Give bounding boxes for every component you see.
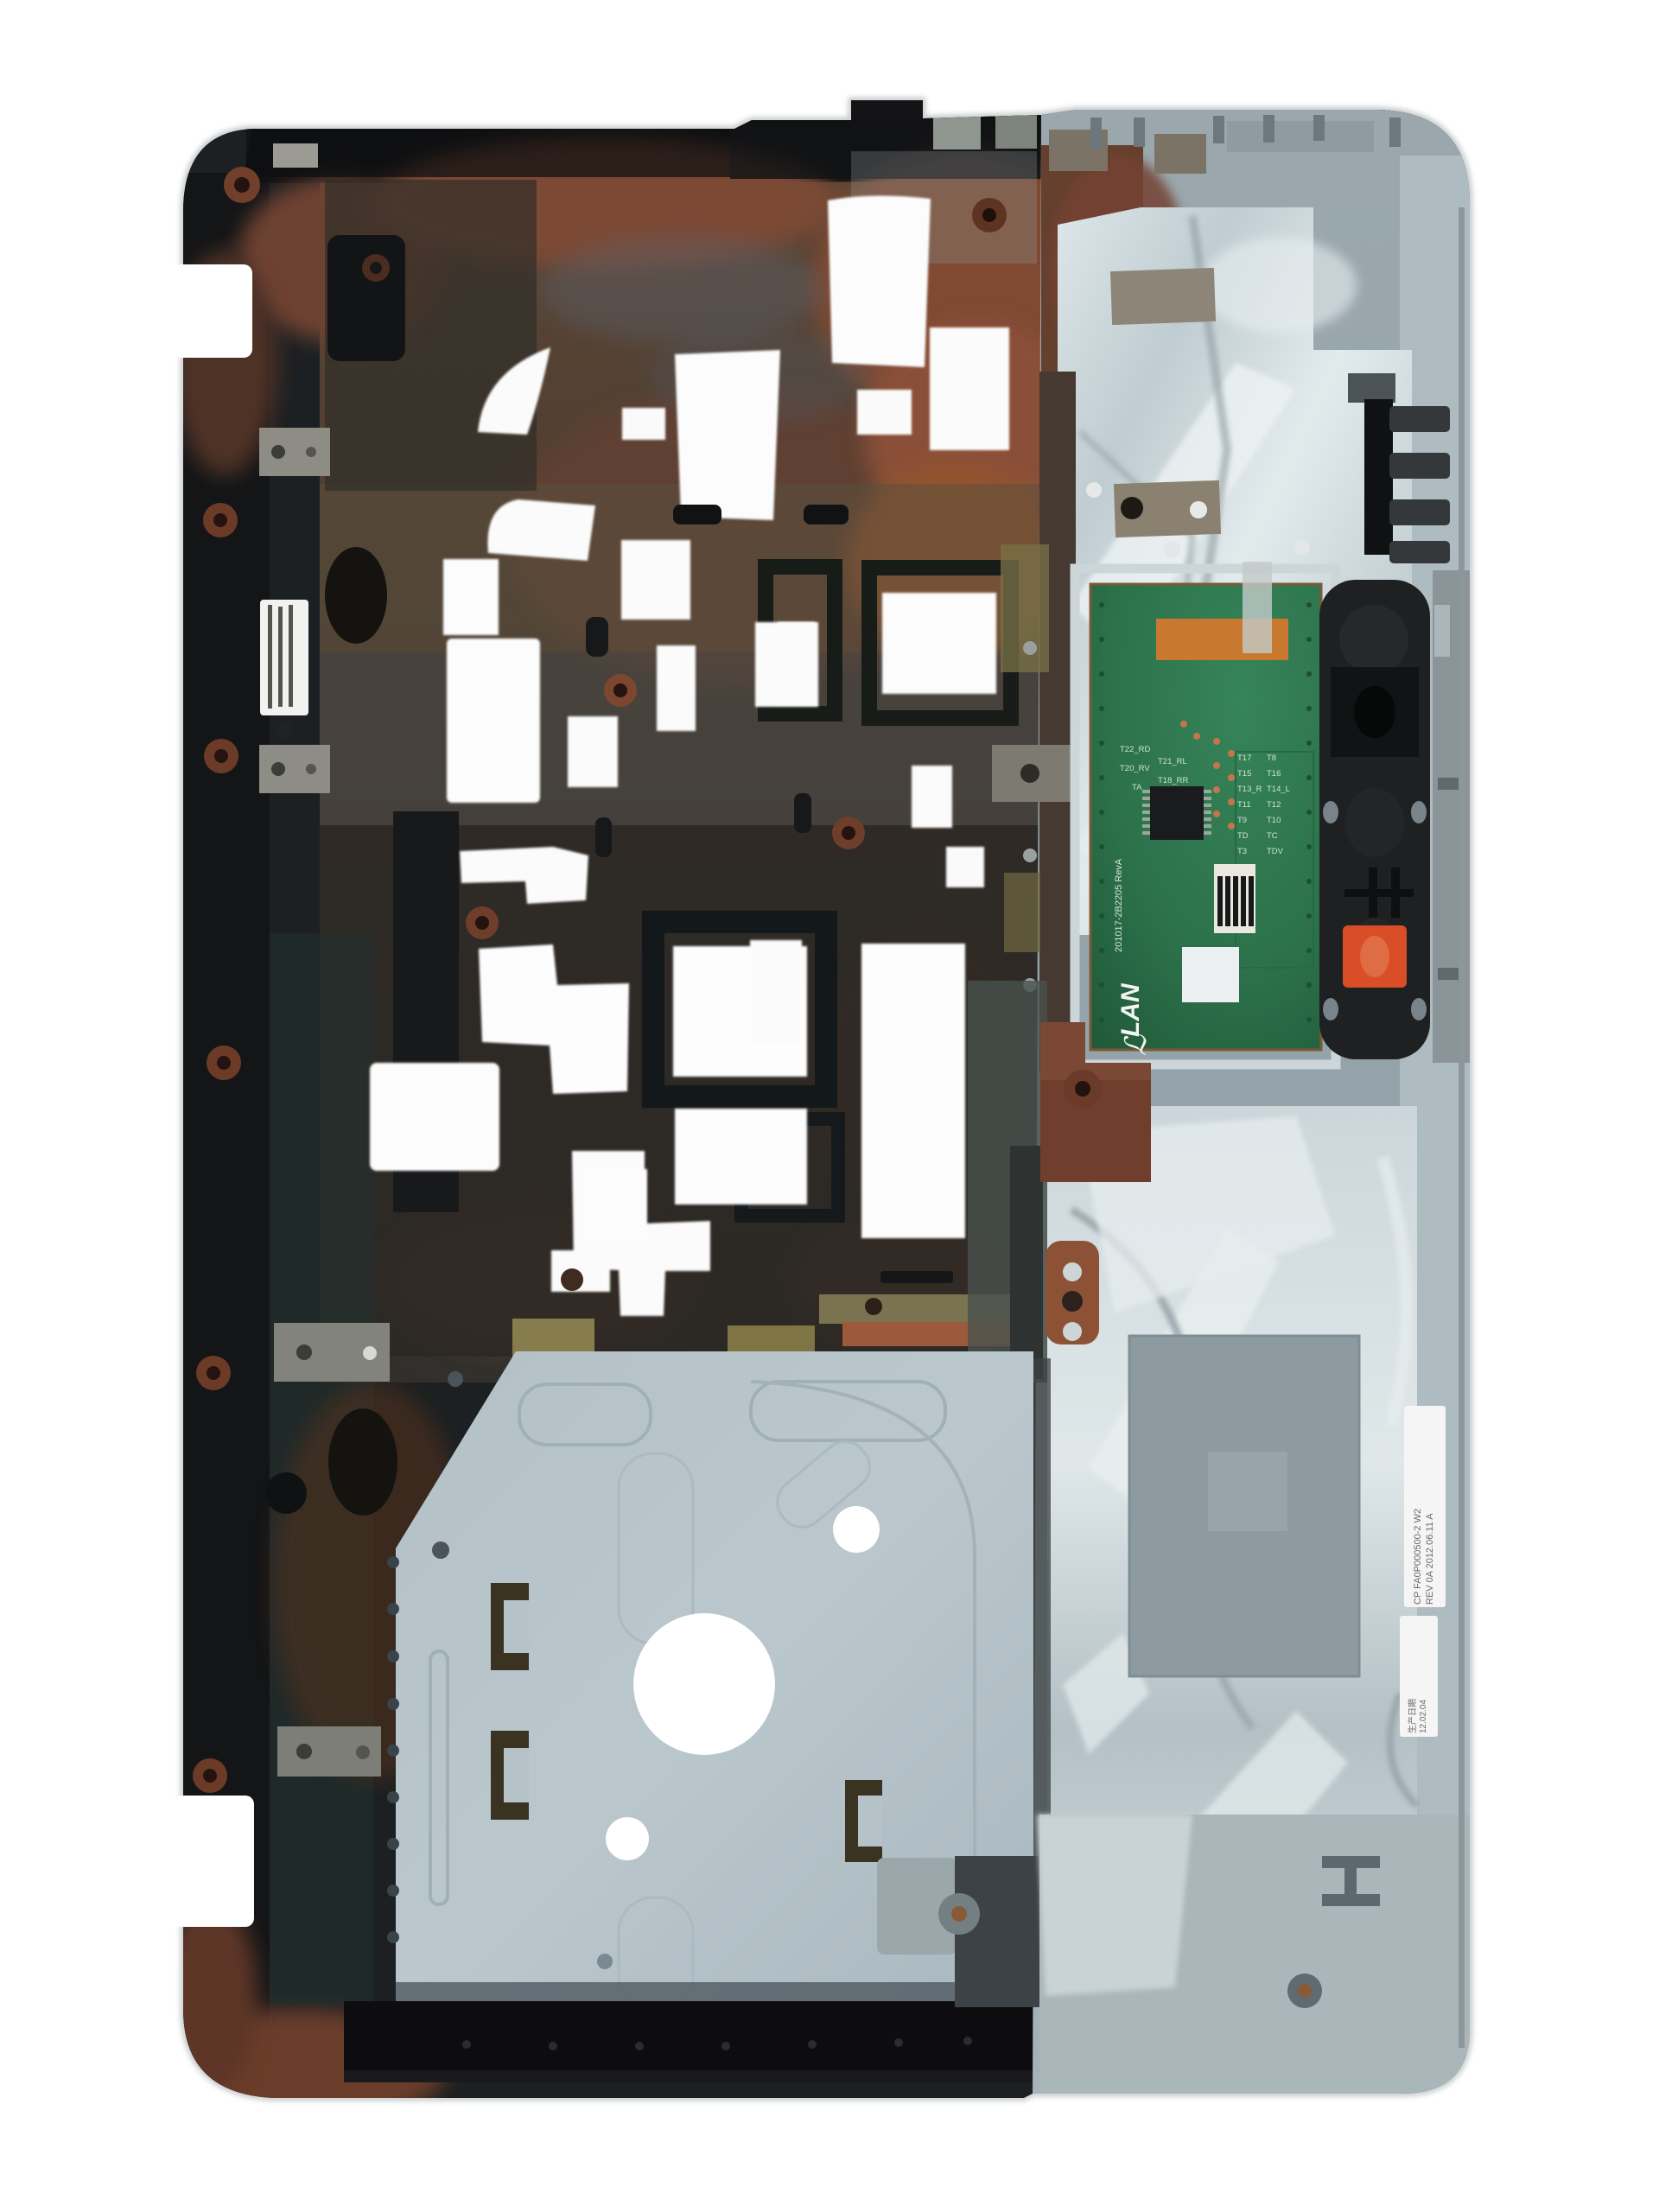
- svg-text:12.02.04: 12.02.04: [1419, 1700, 1428, 1733]
- svg-text:T15: T15: [1237, 769, 1251, 779]
- svg-text:T10: T10: [1267, 816, 1281, 825]
- svg-text:T16: T16: [1267, 769, 1281, 779]
- svg-text:T22_RD: T22_RD: [1120, 745, 1151, 754]
- svg-text:T17: T17: [1237, 753, 1251, 763]
- svg-text:生产日期: 生产日期: [1407, 1699, 1418, 1733]
- svg-text:TA: TA: [1132, 783, 1142, 792]
- svg-text:TDV: TDV: [1267, 847, 1284, 856]
- svg-text:T12: T12: [1267, 800, 1281, 810]
- svg-text:REV 0A 2012.06.11 A: REV 0A 2012.06.11 A: [1425, 1513, 1435, 1605]
- svg-text:T3: T3: [1237, 847, 1247, 856]
- svg-text:ℒ: ℒ: [1120, 1033, 1153, 1056]
- svg-text:LAN: LAN: [1116, 982, 1145, 1037]
- svg-text:TD: TD: [1237, 831, 1249, 841]
- svg-text:T9: T9: [1237, 816, 1247, 825]
- svg-text:CP FA0P000500-2 W2: CP FA0P000500-2 W2: [1413, 1509, 1423, 1605]
- svg-text:201017-2B2205 RevA: 201017-2B2205 RevA: [1114, 858, 1124, 952]
- svg-text:T21_RL: T21_RL: [1158, 757, 1187, 766]
- svg-text:T8: T8: [1267, 753, 1276, 763]
- svg-text:T18_RR: T18_RR: [1158, 776, 1189, 785]
- svg-text:TC: TC: [1267, 831, 1278, 841]
- svg-text:T20_RV: T20_RV: [1120, 764, 1150, 773]
- svg-text:T13_R: T13_R: [1237, 785, 1262, 794]
- svg-text:T11: T11: [1237, 800, 1251, 810]
- svg-text:T14_L: T14_L: [1267, 785, 1290, 794]
